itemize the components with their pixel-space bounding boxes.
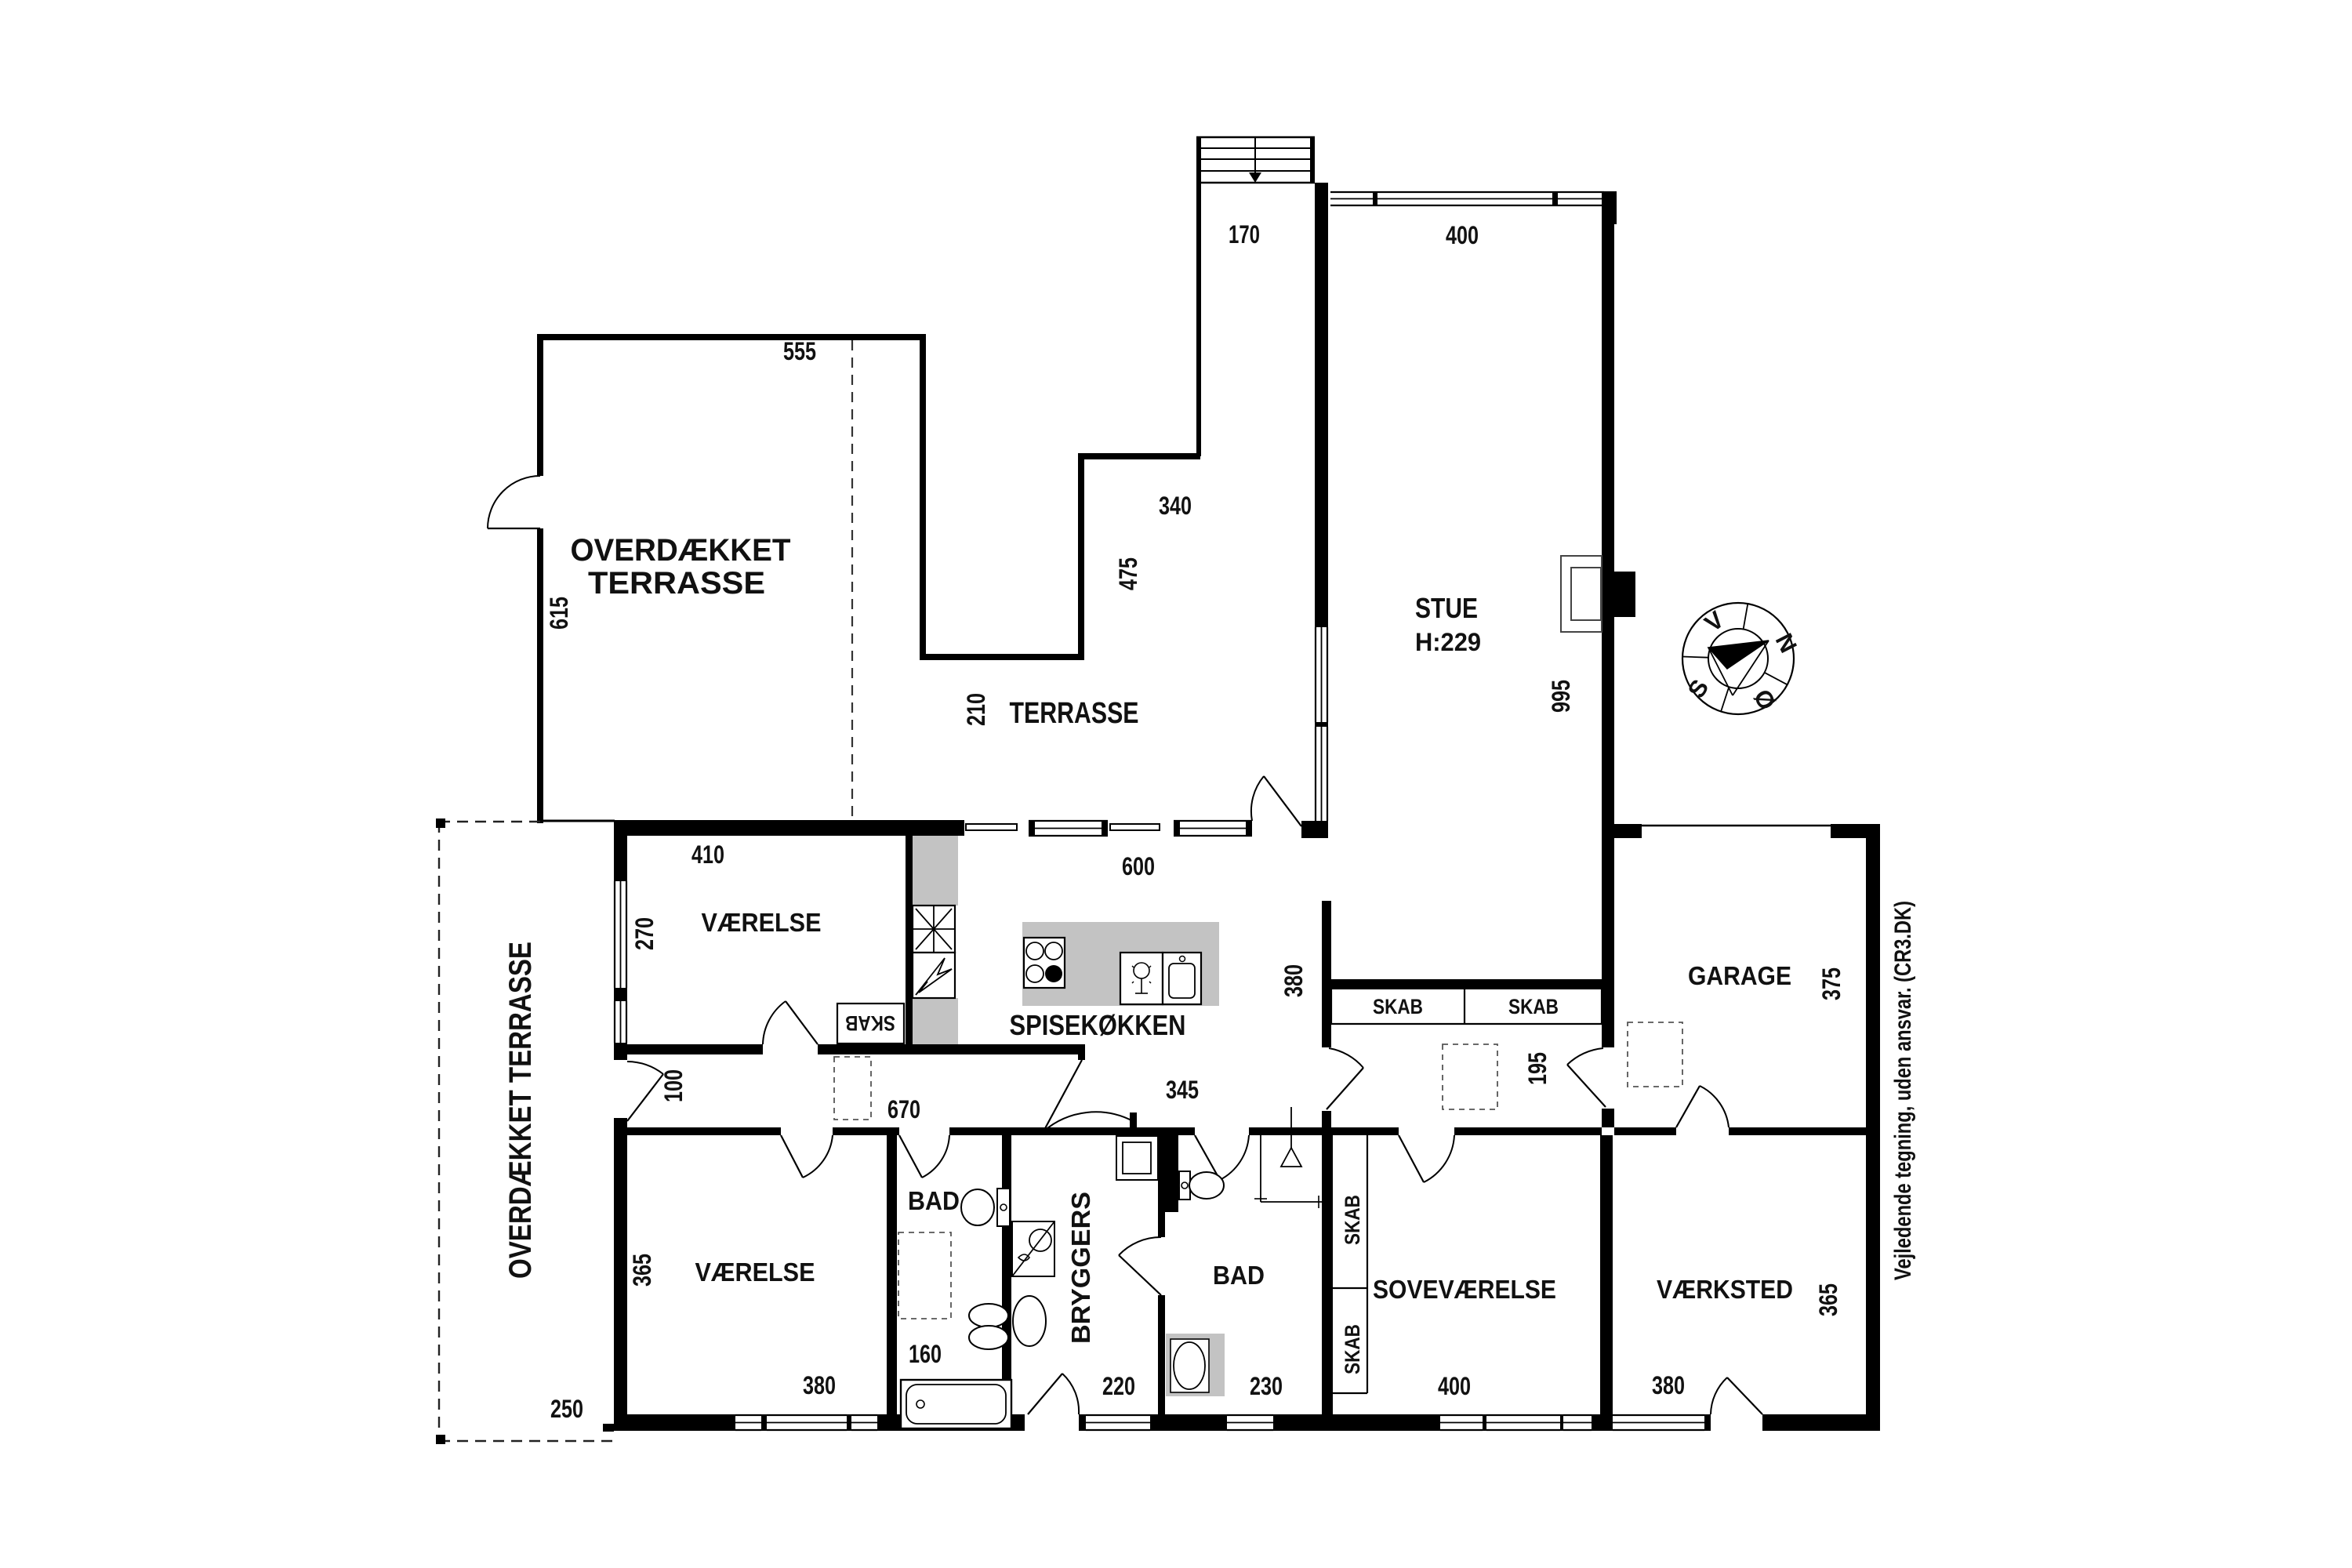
- svg-text:H:229: H:229: [1415, 628, 1481, 656]
- svg-text:170: 170: [1229, 220, 1260, 249]
- svg-text:SOVEVÆRELSE: SOVEVÆRELSE: [1373, 1275, 1556, 1304]
- svg-text:615: 615: [545, 597, 573, 630]
- svg-text:345: 345: [1166, 1076, 1199, 1104]
- svg-text:400: 400: [1438, 1372, 1471, 1400]
- svg-text:BAD: BAD: [908, 1186, 960, 1215]
- svg-text:SKAB: SKAB: [1341, 1195, 1364, 1245]
- svg-text:600: 600: [1122, 852, 1155, 880]
- svg-text:250: 250: [550, 1395, 583, 1423]
- svg-text:195: 195: [1523, 1052, 1552, 1085]
- svg-text:995: 995: [1547, 680, 1575, 713]
- svg-text:VÆRKSTED: VÆRKSTED: [1657, 1275, 1793, 1304]
- svg-text:SKAB: SKAB: [1508, 995, 1559, 1018]
- svg-text:380: 380: [1279, 964, 1308, 997]
- svg-text:220: 220: [1102, 1372, 1135, 1400]
- svg-text:Vejledende tegning, uden ansva: Vejledende tegning, uden ansvar. (CR3.DK…: [1890, 901, 1916, 1280]
- svg-text:380: 380: [1652, 1371, 1685, 1399]
- svg-text:SKAB: SKAB: [1373, 995, 1423, 1018]
- svg-text:375: 375: [1817, 967, 1846, 1000]
- svg-text:400: 400: [1446, 221, 1479, 249]
- svg-text:380: 380: [803, 1371, 836, 1399]
- svg-text:SKAB: SKAB: [845, 1011, 895, 1035]
- svg-text:365: 365: [1814, 1283, 1842, 1316]
- svg-text:SPISEKØKKEN: SPISEKØKKEN: [1010, 1009, 1186, 1041]
- svg-text:270: 270: [630, 917, 659, 950]
- svg-text:GARAGE: GARAGE: [1688, 961, 1791, 990]
- svg-text:555: 555: [783, 337, 816, 365]
- svg-text:OVERDÆKKET: OVERDÆKKET: [571, 533, 791, 568]
- svg-text:160: 160: [909, 1340, 942, 1368]
- svg-text:VÆRELSE: VÆRELSE: [695, 1258, 815, 1287]
- svg-text:365: 365: [628, 1254, 656, 1287]
- svg-text:STUE: STUE: [1415, 592, 1478, 624]
- svg-text:340: 340: [1159, 492, 1192, 520]
- svg-text:475: 475: [1114, 557, 1142, 590]
- svg-text:210: 210: [962, 693, 990, 726]
- svg-text:100: 100: [659, 1069, 688, 1102]
- svg-text:230: 230: [1250, 1372, 1283, 1400]
- svg-text:BAD: BAD: [1213, 1261, 1265, 1290]
- svg-text:410: 410: [691, 840, 724, 869]
- svg-text:670: 670: [887, 1095, 920, 1123]
- svg-text:TERRASSE: TERRASSE: [588, 566, 765, 601]
- svg-text:OVERDÆKKET TERRASSE: OVERDÆKKET TERRASSE: [503, 942, 538, 1279]
- svg-text:TERRASSE: TERRASSE: [1010, 697, 1139, 730]
- svg-text:BRYGGERS: BRYGGERS: [1066, 1192, 1095, 1344]
- svg-text:SKAB: SKAB: [1341, 1324, 1364, 1374]
- svg-text:VÆRELSE: VÆRELSE: [702, 908, 822, 937]
